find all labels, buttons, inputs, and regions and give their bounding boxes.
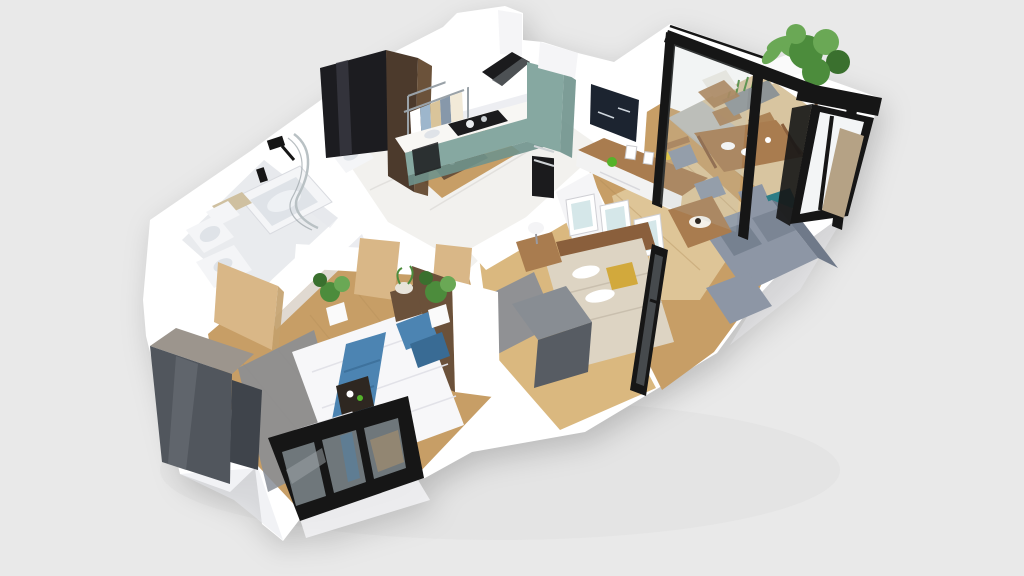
tray-fruit [357,395,363,401]
headboard-wall-white [452,280,500,398]
floorplan-render-canvas [0,0,1024,576]
master-wardrobe-side-panel [230,380,262,470]
pot-on-cooktop [466,120,474,128]
green-decor [607,157,617,167]
tall-teal-cabinet [527,62,564,152]
stand-pot [395,282,413,294]
black-wardrobe-front [320,50,392,158]
plant-leaves [313,273,327,287]
corridor-door-1 [354,238,400,300]
console-photo-frame-2 [643,152,654,165]
table-lamp-shade [528,222,544,234]
coffee-table-decor [695,218,701,224]
plant-leaves [419,271,433,285]
tree-foliage [786,24,806,44]
upper-cabinet-box-1 [443,16,500,92]
partition-glass [660,44,750,232]
plant-leaves [334,276,350,292]
tray-cup [347,391,354,398]
table-lamp-stem [536,234,537,244]
art-frame-1-print [571,200,593,230]
apartment-3d-scene [0,0,1024,576]
cup [765,137,771,143]
pan-on-cooktop [481,116,487,122]
upper-cabinet-box-2 [498,10,522,56]
console-photo-frame [625,145,637,159]
plant-leaves [440,276,456,292]
